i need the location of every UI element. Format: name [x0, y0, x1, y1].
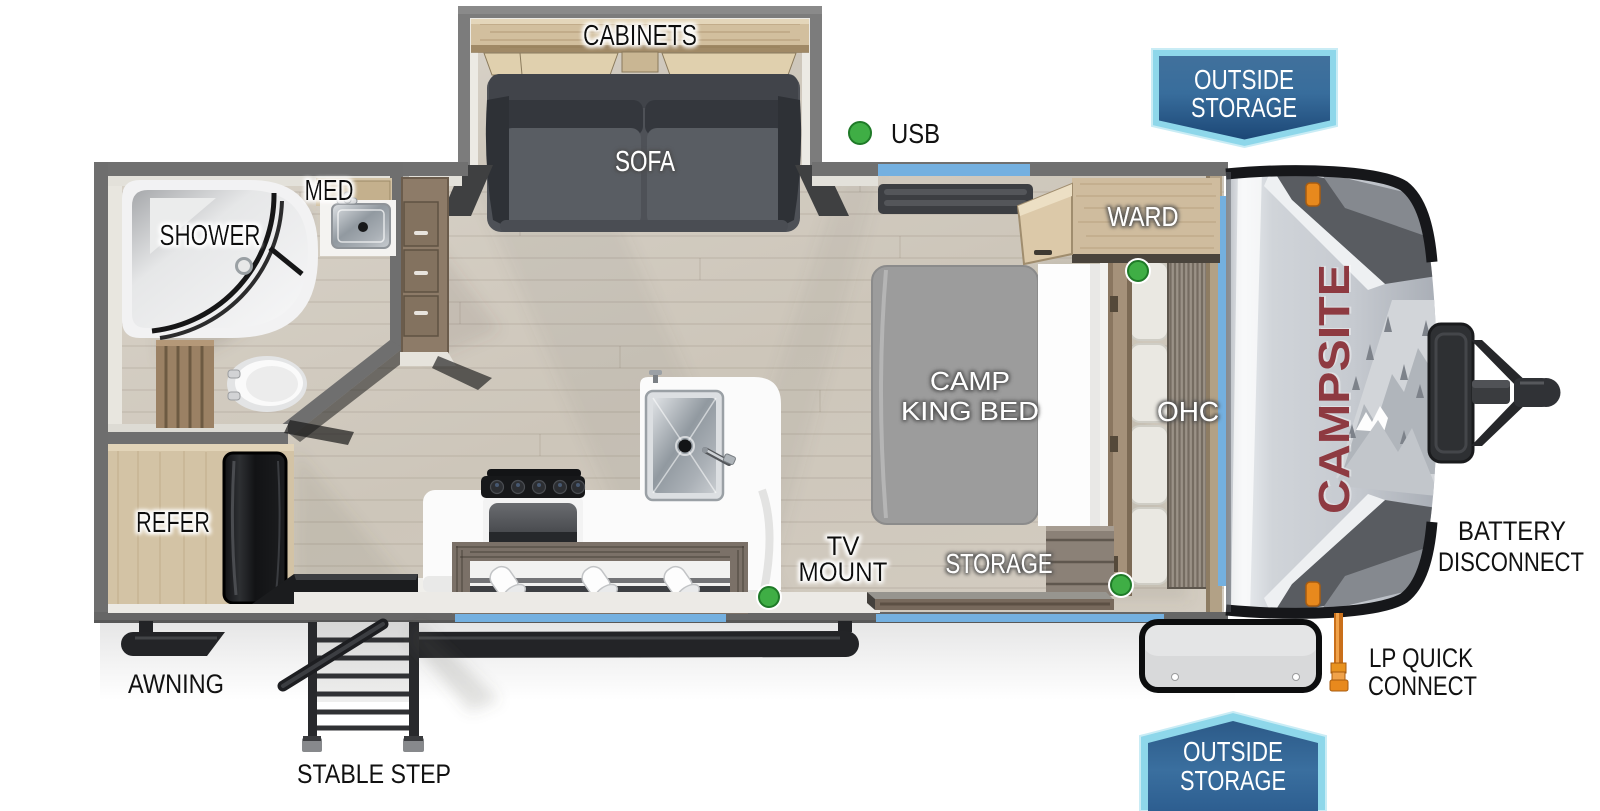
svg-text:OHC: OHC [1157, 396, 1219, 427]
svg-text:SOFA: SOFA [615, 146, 676, 178]
svg-text:DISCONNECT: DISCONNECT [1438, 547, 1584, 577]
svg-text:CAMP: CAMP [930, 366, 1010, 396]
svg-text:WARD: WARD [1108, 201, 1179, 232]
svg-text:STABLE STEP: STABLE STEP [297, 759, 451, 789]
svg-text:CABINETS: CABINETS [583, 20, 697, 52]
svg-text:USB: USB [891, 118, 940, 149]
svg-text:STORAGE: STORAGE [1180, 765, 1286, 796]
svg-text:CONNECT: CONNECT [1368, 671, 1477, 701]
svg-text:MED: MED [305, 175, 354, 207]
svg-text:STORAGE: STORAGE [1191, 92, 1297, 123]
svg-text:MOUNT: MOUNT [799, 557, 888, 587]
svg-text:REFER: REFER [136, 507, 210, 539]
svg-text:SHOWER: SHOWER [160, 220, 261, 252]
svg-text:OUTSIDE: OUTSIDE [1194, 64, 1294, 95]
svg-text:AWNING: AWNING [128, 669, 224, 699]
svg-text:CAMPSITE: CAMPSITE [1310, 264, 1359, 514]
svg-text:LP QUICK: LP QUICK [1369, 643, 1473, 673]
svg-text:BATTERY: BATTERY [1458, 516, 1566, 546]
svg-text:STORAGE: STORAGE [946, 548, 1053, 579]
svg-text:OUTSIDE: OUTSIDE [1183, 736, 1283, 767]
svg-text:KING BED: KING BED [901, 396, 1039, 426]
